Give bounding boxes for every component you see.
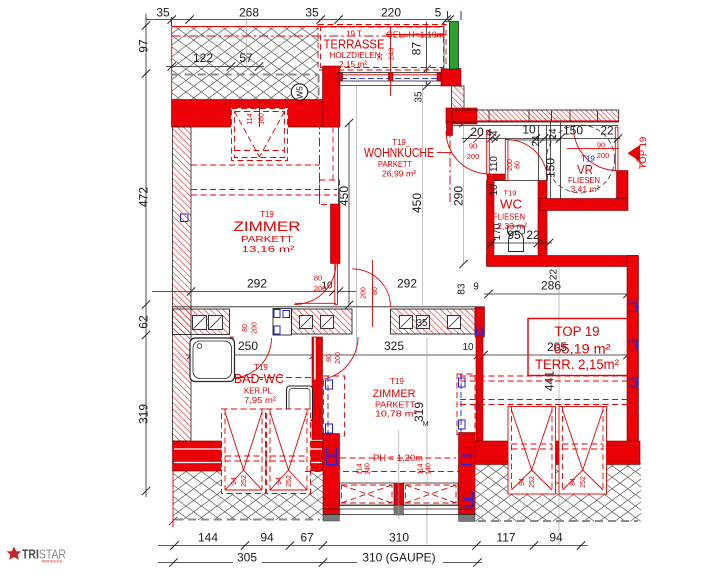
svg-text:160: 160: [475, 400, 482, 411]
svg-text:5: 5: [435, 6, 442, 20]
svg-text:252: 252: [529, 476, 536, 488]
svg-text:94: 94: [260, 531, 274, 545]
svg-text:WC: WC: [500, 197, 522, 212]
svg-text:TOP 19: TOP 19: [555, 324, 600, 339]
svg-text:325: 325: [384, 339, 404, 353]
svg-text:22: 22: [600, 124, 614, 138]
svg-text:170: 170: [492, 223, 503, 240]
svg-text:10: 10: [489, 184, 500, 196]
svg-text:80: 80: [326, 354, 333, 362]
svg-text:22: 22: [526, 228, 540, 242]
svg-text:94: 94: [276, 477, 283, 485]
svg-text:35: 35: [414, 91, 425, 103]
svg-text:94: 94: [231, 477, 238, 485]
svg-text:W5: W5: [294, 86, 304, 99]
svg-text:ZIMMER: ZIMMER: [234, 218, 301, 234]
svg-text:57: 57: [239, 51, 253, 65]
svg-text:2,15 m²: 2,15 m²: [339, 59, 367, 69]
svg-text:9: 9: [473, 282, 479, 293]
svg-text:TOP 19: TOP 19: [638, 137, 649, 169]
svg-text:292: 292: [247, 277, 267, 291]
svg-text:67: 67: [300, 531, 314, 545]
svg-text:62: 62: [137, 315, 151, 329]
svg-text:26,99 m²: 26,99 m²: [382, 169, 416, 179]
svg-text:80: 80: [242, 324, 249, 332]
svg-text:T19: T19: [390, 377, 404, 386]
svg-text:65,19 m²: 65,19 m²: [554, 342, 612, 357]
svg-text:250: 250: [238, 339, 258, 353]
svg-text:94: 94: [519, 478, 526, 486]
svg-text:3,41 m²: 3,41 m²: [571, 184, 600, 194]
svg-text:80: 80: [515, 161, 522, 169]
svg-text:114: 114: [247, 113, 254, 124]
svg-text:122: 122: [193, 51, 213, 65]
svg-text:305: 305: [237, 551, 257, 565]
svg-text:144: 144: [198, 531, 218, 545]
svg-text:87: 87: [410, 42, 424, 56]
svg-text:35: 35: [156, 6, 170, 20]
svg-text:140: 140: [426, 463, 433, 475]
svg-text:20: 20: [377, 53, 384, 61]
svg-text:20: 20: [470, 125, 484, 139]
svg-text:80: 80: [372, 287, 379, 295]
svg-text:PARKETT: PARKETT: [378, 159, 412, 169]
svg-text:24: 24: [531, 135, 542, 147]
svg-text:90: 90: [469, 142, 477, 151]
svg-text:PARKETT: PARKETT: [241, 234, 293, 244]
svg-text:94: 94: [570, 478, 577, 486]
svg-text:243: 243: [387, 48, 396, 61]
svg-text:BAD-WC: BAD-WC: [234, 371, 284, 386]
svg-text:94: 94: [549, 531, 563, 545]
svg-text:83: 83: [457, 283, 468, 295]
svg-text:35: 35: [305, 6, 319, 20]
svg-text:10: 10: [462, 342, 474, 353]
svg-text:252: 252: [580, 476, 587, 488]
svg-text:200: 200: [597, 151, 610, 160]
svg-text:FLIESEN: FLIESEN: [493, 212, 525, 222]
svg-text:472: 472: [137, 187, 151, 207]
svg-text:22: 22: [549, 269, 560, 281]
svg-text:TERRASSE: TERRASSE: [324, 37, 385, 52]
svg-text:ZIMMER: ZIMMER: [373, 388, 416, 400]
svg-text:110: 110: [489, 156, 500, 172]
svg-text:7,95 m²: 7,95 m²: [244, 395, 276, 405]
svg-text:140: 140: [365, 463, 372, 475]
svg-text:114: 114: [418, 463, 425, 474]
svg-text:IMMOBILIEN: IMMOBILIEN: [42, 559, 63, 564]
svg-text:97: 97: [137, 39, 151, 53]
svg-text:200: 200: [252, 322, 259, 334]
svg-text:292: 292: [397, 277, 417, 291]
svg-text:150: 150: [544, 158, 558, 178]
svg-text:450: 450: [410, 193, 424, 213]
svg-text:114: 114: [357, 463, 364, 474]
svg-text:95: 95: [507, 228, 521, 242]
svg-text:200: 200: [361, 287, 368, 299]
svg-text:M: M: [423, 421, 429, 428]
svg-text:252: 252: [286, 475, 293, 487]
svg-text:KER.PL.: KER.PL.: [244, 386, 274, 396]
svg-text:TERR. 2,15m²: TERR. 2,15m²: [535, 357, 619, 372]
svg-text:90: 90: [597, 141, 605, 150]
svg-text:268: 268: [239, 6, 259, 20]
svg-text:252: 252: [241, 475, 248, 487]
svg-text:35: 35: [416, 318, 428, 329]
svg-text:117: 117: [496, 531, 515, 545]
svg-text:80: 80: [314, 274, 322, 283]
svg-text:220: 220: [381, 6, 401, 20]
svg-text:PH = 1,20m: PH = 1,20m: [373, 453, 423, 463]
svg-text:WOHNKÜCHE: WOHNKÜCHE: [364, 145, 434, 160]
svg-text:319: 319: [137, 404, 151, 424]
svg-text:310 (GAUPE): 310 (GAUPE): [362, 551, 435, 565]
svg-text:200: 200: [467, 152, 480, 161]
svg-text:24: 24: [490, 130, 501, 142]
svg-text:290: 290: [452, 186, 466, 206]
svg-text:200: 200: [507, 159, 514, 171]
svg-text:310: 310: [389, 531, 409, 545]
svg-text:10: 10: [522, 123, 536, 137]
svg-text:150: 150: [563, 124, 583, 138]
svg-text:200: 200: [314, 284, 327, 293]
svg-text:160: 160: [259, 113, 266, 125]
svg-text:13,16 m²: 13,16 m²: [242, 244, 295, 254]
svg-text:200: 200: [335, 352, 342, 364]
svg-text:10,78 m²: 10,78 m²: [375, 409, 417, 419]
svg-text:24: 24: [548, 128, 559, 140]
